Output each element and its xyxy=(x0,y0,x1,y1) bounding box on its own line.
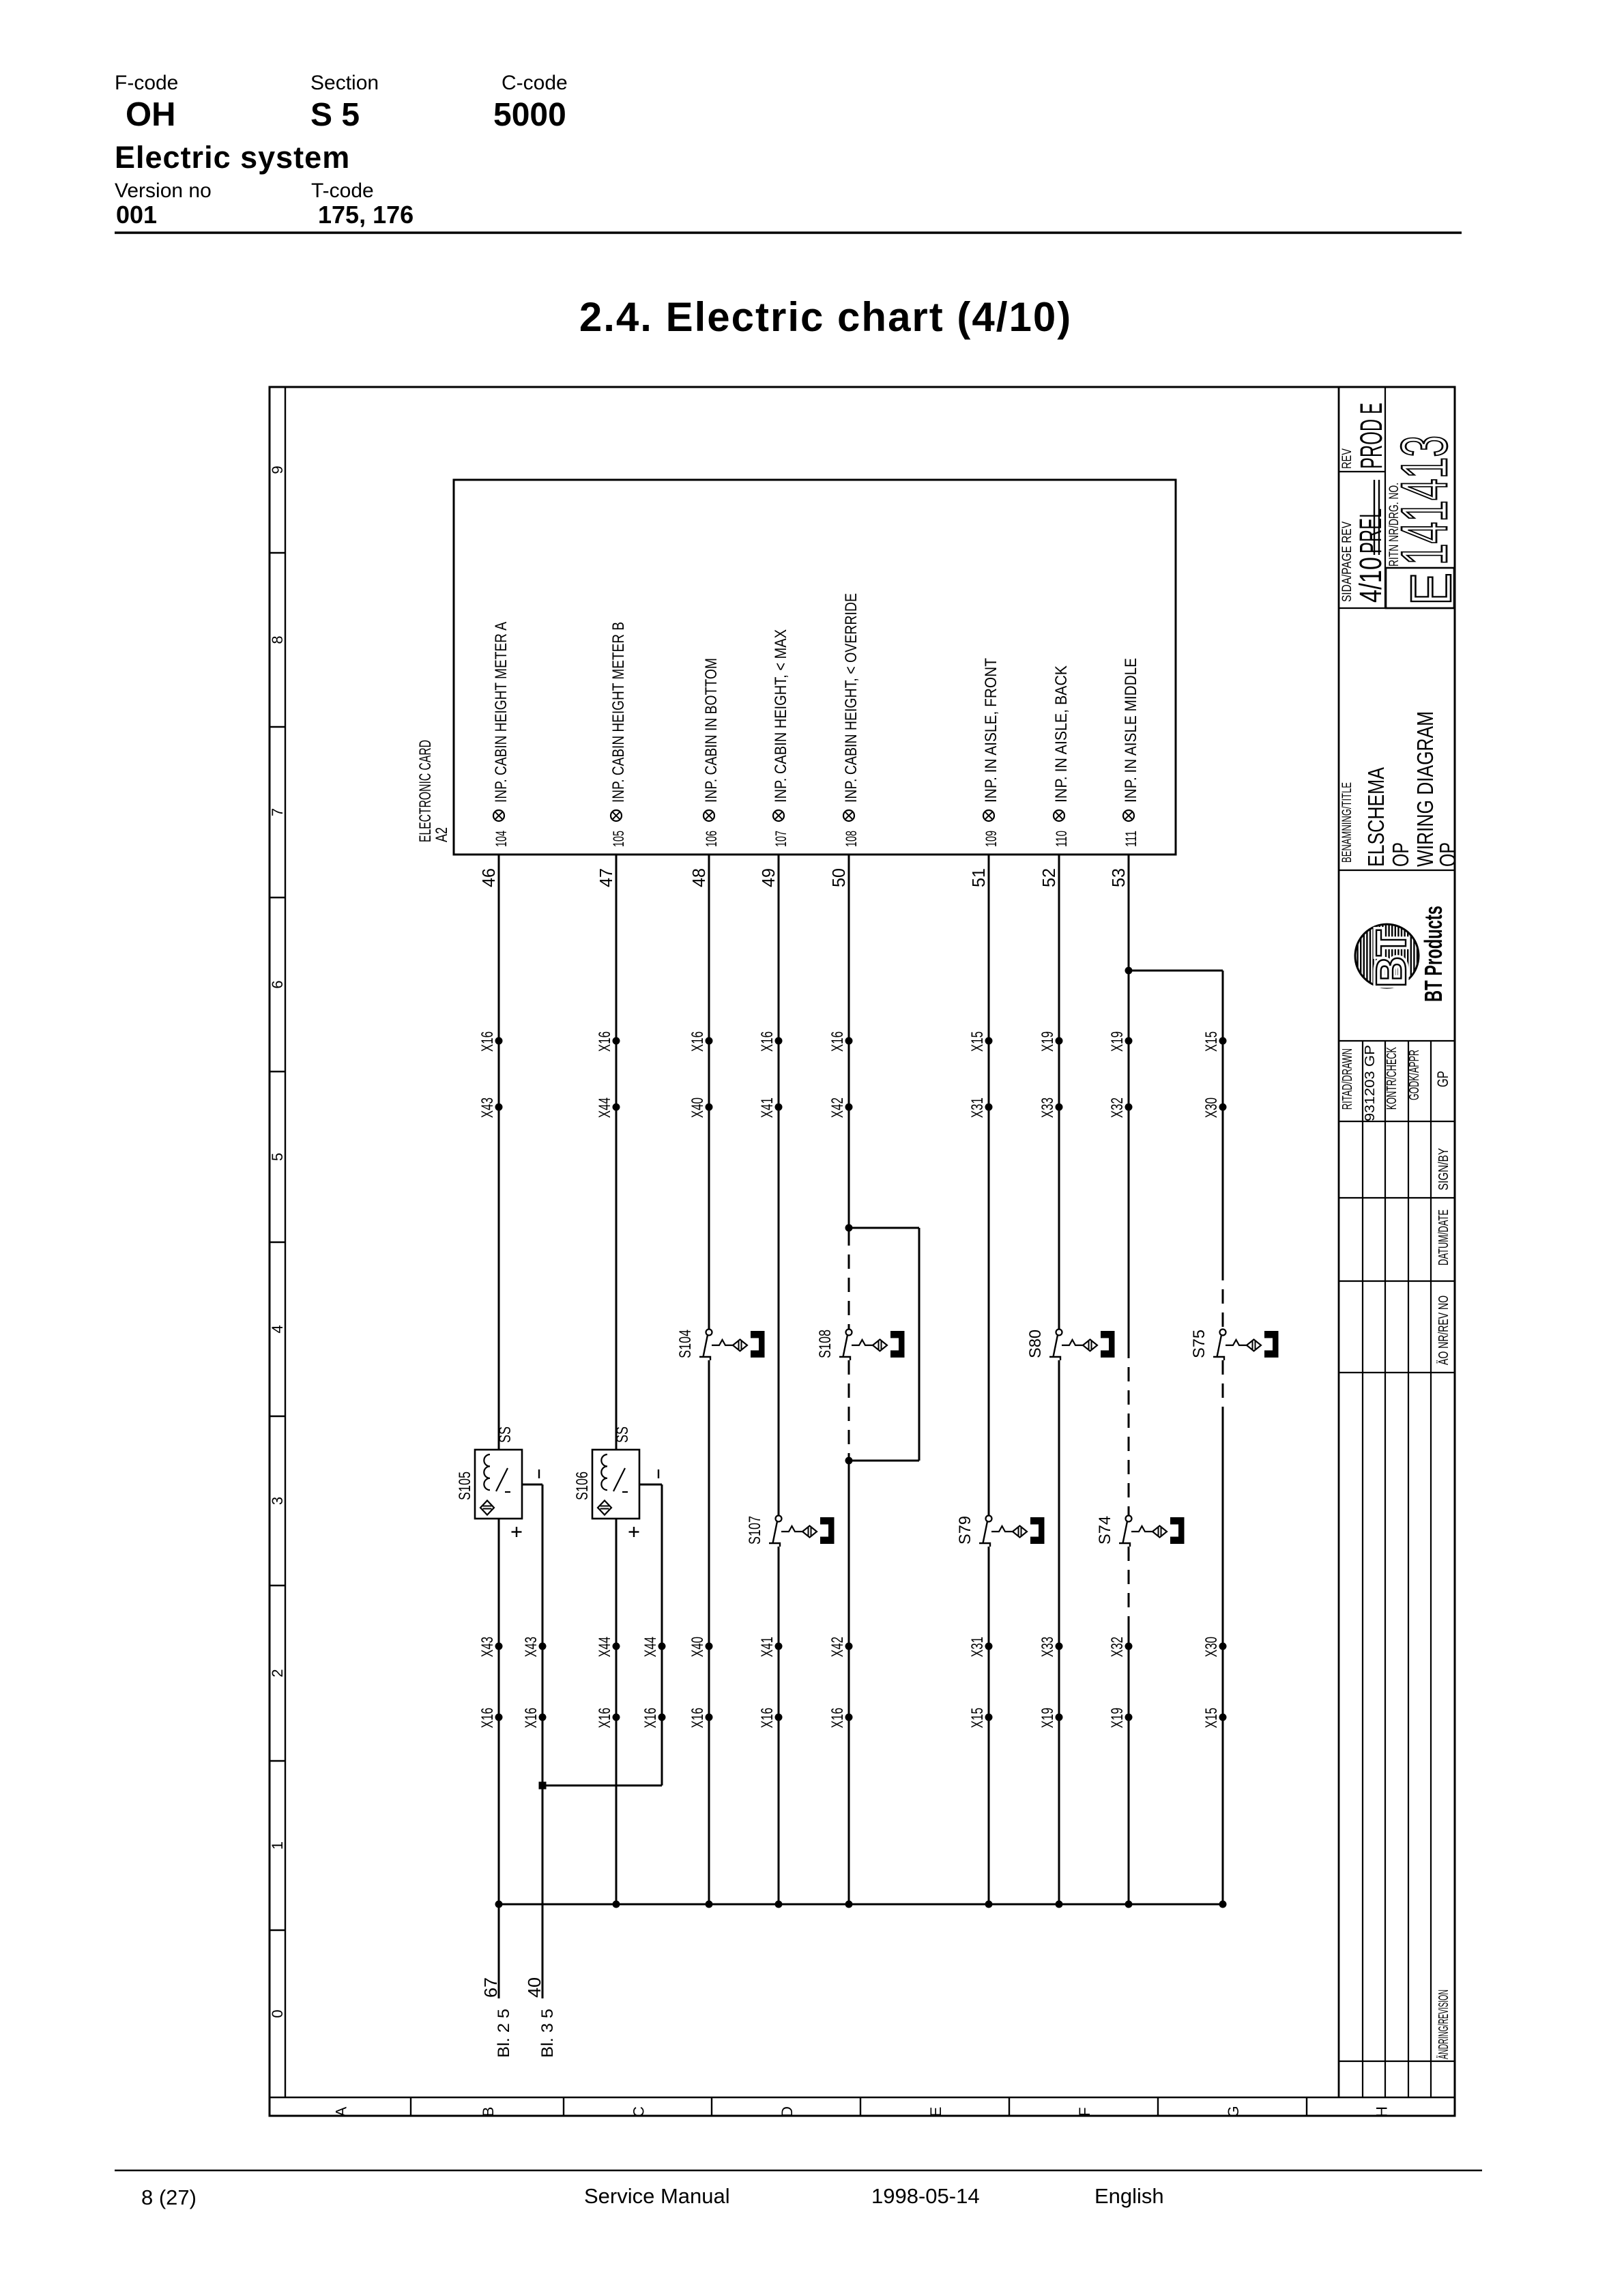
svg-text:OH: OH xyxy=(126,96,176,133)
svg-text:B: B xyxy=(480,2107,497,2117)
svg-text:X16: X16 xyxy=(828,1031,847,1052)
svg-text:1998-05-14: 1998-05-14 xyxy=(871,2184,980,2208)
svg-text:8 (27): 8 (27) xyxy=(141,2185,197,2209)
svg-text:INP. IN AISLE, FRONT: INP. IN AISLE, FRONT xyxy=(982,658,1000,803)
svg-text:001: 001 xyxy=(116,201,157,229)
svg-text:5000: 5000 xyxy=(493,97,566,133)
svg-text:INP. CABIN HEIGHT METER B: INP. CABIN HEIGHT METER B xyxy=(609,622,628,803)
svg-text:SS: SS xyxy=(613,1426,632,1443)
svg-text:6: 6 xyxy=(269,980,286,988)
svg-text:50: 50 xyxy=(828,868,849,887)
svg-text:9: 9 xyxy=(269,465,286,474)
svg-text:4/10: 4/10 xyxy=(1353,557,1388,603)
svg-text:X15: X15 xyxy=(1202,1708,1221,1728)
svg-text:RITAD/DRAWN: RITAD/DRAWN xyxy=(1340,1048,1355,1110)
svg-text:INP. IN AISLE, BACK: INP. IN AISLE, BACK xyxy=(1052,665,1071,803)
svg-text:X16: X16 xyxy=(641,1708,660,1728)
svg-text:X40: X40 xyxy=(688,1097,707,1118)
svg-text:2: 2 xyxy=(269,1669,286,1677)
svg-text:WIRING DIAGRAM: WIRING DIAGRAM xyxy=(1412,711,1438,867)
svg-text:X16: X16 xyxy=(758,1708,777,1728)
svg-text:49: 49 xyxy=(758,868,779,887)
svg-text:E: E xyxy=(927,2107,944,2117)
svg-text:4: 4 xyxy=(269,1325,286,1333)
svg-text:S80: S80 xyxy=(1026,1330,1045,1358)
svg-text:X43: X43 xyxy=(478,1637,497,1657)
svg-text:Version no: Version no xyxy=(115,180,212,202)
svg-text:INP. CABIN HEIGHT, < OVERRIDE: INP. CABIN HEIGHT, < OVERRIDE xyxy=(842,593,860,803)
svg-text:111: 111 xyxy=(1122,831,1140,847)
svg-text:X16: X16 xyxy=(522,1708,540,1728)
svg-text:G: G xyxy=(1225,2106,1242,2117)
svg-text:X16: X16 xyxy=(688,1031,707,1052)
svg-text:OP: OP xyxy=(1388,842,1413,867)
svg-text:A: A xyxy=(333,2106,350,2116)
svg-text:SIDA/PAGE REV: SIDA/PAGE REV xyxy=(1340,521,1354,602)
svg-text:INP. CABIN HEIGHT METER A: INP. CABIN HEIGHT METER A xyxy=(492,622,510,803)
svg-text:S104: S104 xyxy=(676,1330,695,1358)
svg-text:E: E xyxy=(1399,573,1463,605)
svg-text:GODK/APPR: GODK/APPR xyxy=(1407,1050,1422,1100)
svg-text:X19: X19 xyxy=(1039,1031,1057,1052)
svg-text:7: 7 xyxy=(269,808,286,816)
svg-text:110: 110 xyxy=(1053,831,1070,847)
svg-text:T-code: T-code xyxy=(311,180,374,202)
svg-text:PROD E: PROD E xyxy=(1354,403,1389,469)
svg-text:X16: X16 xyxy=(688,1708,707,1728)
svg-text:Service Manual: Service Manual xyxy=(584,2184,730,2208)
svg-text:English: English xyxy=(1094,2184,1164,2208)
svg-text:67: 67 xyxy=(480,1977,501,1998)
svg-text:X30: X30 xyxy=(1202,1097,1221,1118)
svg-text:SIGN/BY: SIGN/BY xyxy=(1436,1148,1451,1190)
svg-text:Bl. 3 5: Bl. 3 5 xyxy=(538,2009,557,2058)
svg-text:X15: X15 xyxy=(968,1031,987,1052)
svg-text:X33: X33 xyxy=(1039,1097,1057,1118)
svg-text:52: 52 xyxy=(1039,868,1059,887)
svg-text:INP. CABIN HEIGHT, < MAX: INP. CABIN HEIGHT, < MAX xyxy=(772,629,790,803)
svg-text:47: 47 xyxy=(596,868,616,887)
svg-text:48: 48 xyxy=(688,868,709,887)
svg-text:S107: S107 xyxy=(746,1516,764,1545)
svg-text:C: C xyxy=(630,2106,648,2117)
svg-text:2.4. Electric chart (4/10): 2.4. Electric chart (4/10) xyxy=(579,294,1072,340)
svg-text:40: 40 xyxy=(524,1977,545,1998)
svg-text:F-code: F-code xyxy=(115,72,178,94)
svg-text:X15: X15 xyxy=(1202,1031,1221,1052)
svg-text:X44: X44 xyxy=(596,1637,614,1657)
svg-text:X16: X16 xyxy=(758,1031,777,1052)
svg-text:141413: 141413 xyxy=(1388,435,1461,565)
svg-text:C-code: C-code xyxy=(502,72,568,94)
svg-text:X44: X44 xyxy=(641,1637,660,1657)
svg-text:X16: X16 xyxy=(596,1031,614,1052)
svg-text:S 5: S 5 xyxy=(310,97,360,133)
svg-text:X16: X16 xyxy=(478,1708,497,1728)
svg-text:Electric system: Electric system xyxy=(115,140,350,175)
svg-text:H: H xyxy=(1374,2106,1391,2117)
svg-text:1: 1 xyxy=(269,1841,286,1850)
svg-text:X31: X31 xyxy=(968,1637,987,1657)
svg-text:X40: X40 xyxy=(688,1637,707,1657)
svg-text:X19: X19 xyxy=(1108,1031,1127,1052)
svg-text:OP: OP xyxy=(1435,842,1460,867)
svg-text:Section: Section xyxy=(310,72,379,94)
svg-text:46: 46 xyxy=(478,868,499,887)
svg-text:F: F xyxy=(1076,2107,1093,2116)
svg-text:X42: X42 xyxy=(828,1097,847,1118)
svg-text:X19: X19 xyxy=(1108,1708,1127,1728)
svg-text:X31: X31 xyxy=(968,1097,987,1118)
svg-text:107: 107 xyxy=(772,831,789,847)
svg-text:INP. CABIN IN BOTTOM: INP. CABIN IN BOTTOM xyxy=(702,658,721,803)
svg-text:REV: REV xyxy=(1340,448,1354,469)
svg-text:SS: SS xyxy=(496,1426,514,1443)
svg-text:X16: X16 xyxy=(478,1031,497,1052)
svg-text:X32: X32 xyxy=(1108,1637,1127,1657)
svg-text:BT: BT xyxy=(1368,930,1415,988)
svg-text:ÄNDRING/REVISION: ÄNDRING/REVISION xyxy=(1436,1990,1451,2059)
svg-text:KONTR/CHECK: KONTR/CHECK xyxy=(1384,1047,1400,1110)
svg-text:BT Products: BT Products xyxy=(1419,906,1447,1002)
svg-text:D: D xyxy=(779,2106,796,2117)
svg-text:0: 0 xyxy=(269,2009,286,2018)
svg-text:5: 5 xyxy=(269,1153,286,1161)
svg-text:X16: X16 xyxy=(596,1708,614,1728)
svg-text:GP: GP xyxy=(1434,1071,1451,1087)
svg-text:DATUM/DATE: DATUM/DATE xyxy=(1436,1209,1451,1265)
svg-text:X43: X43 xyxy=(522,1637,540,1657)
svg-text:S105: S105 xyxy=(456,1472,474,1500)
svg-text:ELECTRONIC CARD: ELECTRONIC CARD xyxy=(416,740,435,842)
svg-text:X41: X41 xyxy=(758,1097,777,1118)
svg-text:X44: X44 xyxy=(596,1097,614,1118)
svg-text:X30: X30 xyxy=(1202,1637,1221,1657)
svg-text:ÄO NR/REV NO: ÄO NR/REV NO xyxy=(1436,1295,1451,1365)
svg-text:106: 106 xyxy=(703,831,720,847)
svg-text:ELSCHEMA: ELSCHEMA xyxy=(1363,767,1389,867)
svg-text:53: 53 xyxy=(1108,868,1129,887)
svg-text:104: 104 xyxy=(493,831,510,847)
svg-text:A2: A2 xyxy=(433,827,451,842)
svg-text:X43: X43 xyxy=(478,1097,497,1118)
svg-text:109: 109 xyxy=(983,831,1000,847)
svg-text:X32: X32 xyxy=(1108,1097,1127,1118)
svg-text:X42: X42 xyxy=(828,1637,847,1657)
svg-text:108: 108 xyxy=(843,831,860,847)
svg-text:X15: X15 xyxy=(968,1708,987,1728)
svg-text:105: 105 xyxy=(610,831,627,847)
svg-text:S106: S106 xyxy=(573,1472,592,1500)
svg-text:S79: S79 xyxy=(956,1516,974,1545)
svg-text:BENAMNING/TITLE: BENAMNING/TITLE xyxy=(1340,782,1354,863)
svg-text:175, 176: 175, 176 xyxy=(318,201,414,229)
svg-text:931203 GP: 931203 GP xyxy=(1363,1045,1378,1121)
svg-text:51: 51 xyxy=(968,868,989,887)
svg-text:X16: X16 xyxy=(828,1708,847,1728)
svg-text:INP. IN AISLE MIDDLE: INP. IN AISLE MIDDLE xyxy=(1122,658,1140,803)
svg-text:Bl. 2 5: Bl. 2 5 xyxy=(495,2009,513,2058)
svg-text:X41: X41 xyxy=(758,1637,777,1657)
svg-text:X19: X19 xyxy=(1039,1708,1057,1728)
svg-text:8: 8 xyxy=(269,635,286,644)
svg-text:S108: S108 xyxy=(816,1330,835,1358)
svg-text:S74: S74 xyxy=(1096,1516,1114,1545)
svg-text:X33: X33 xyxy=(1039,1637,1057,1657)
svg-text:3: 3 xyxy=(269,1497,286,1505)
svg-text:S75: S75 xyxy=(1190,1330,1208,1358)
svg-text:PREL: PREL xyxy=(1353,508,1388,554)
